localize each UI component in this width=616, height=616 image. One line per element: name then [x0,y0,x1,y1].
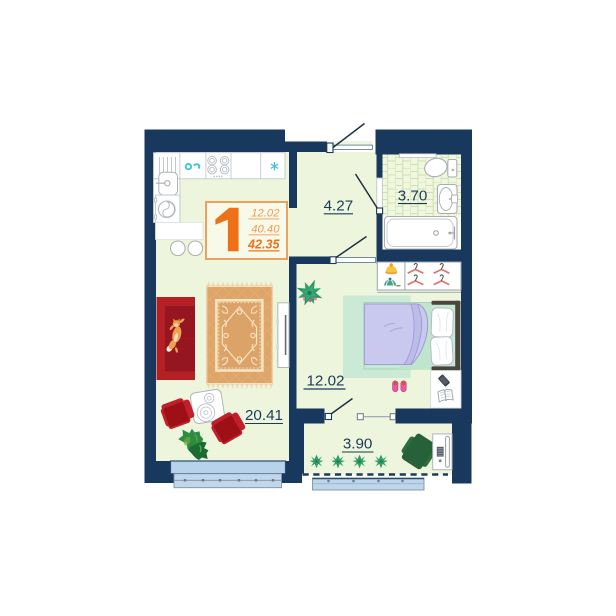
svg-text:3.70: 3.70 [398,187,428,204]
svg-text:12.02: 12.02 [251,208,280,220]
svg-text:3.90: 3.90 [343,436,373,453]
svg-text:12.02: 12.02 [306,373,344,390]
svg-text:40.40: 40.40 [251,223,280,235]
svg-text:4.27: 4.27 [324,198,354,215]
svg-text:42.35: 42.35 [247,237,281,251]
svg-text:20.41: 20.41 [245,407,283,424]
